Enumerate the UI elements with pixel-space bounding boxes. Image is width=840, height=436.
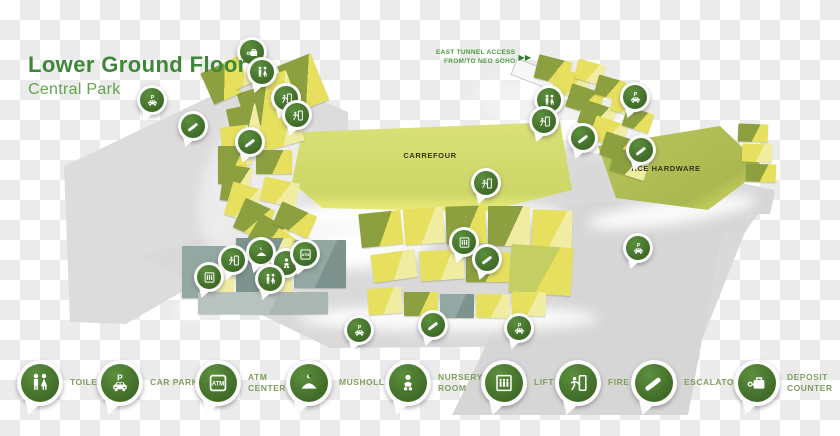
carpark-icon: P: [507, 316, 531, 340]
page-title: Lower Ground Floor: [28, 52, 247, 78]
legend-pin-escalator: [631, 360, 677, 406]
legend-pin-toilet: [17, 360, 63, 406]
legend-label: DEPOSIT COUNTER: [787, 360, 840, 406]
carrefour-area[interactable]: [292, 118, 572, 214]
map-pin-carpark[interactable]: P: [620, 82, 650, 112]
ace-hardware-label: ACE HARDWARE: [616, 164, 716, 173]
legend-pin-musholla: [286, 360, 332, 406]
legend-pin-deposit: [734, 360, 780, 406]
map-pin-atm[interactable]: ATM: [290, 239, 320, 269]
tunnel-arrows-icon: ▶ ▶: [518, 53, 530, 62]
escalator-icon: [181, 114, 205, 138]
shop-unit-block: [440, 294, 474, 318]
mall-map-canvas: Lower Ground Floor Central Park EAST TUN…: [0, 0, 840, 436]
shop-unit-block: [367, 287, 403, 315]
shop-unit-block: [403, 207, 445, 246]
map-pin-escalator[interactable]: [626, 135, 656, 165]
musholla-icon: [290, 364, 328, 402]
map-pin-escalator[interactable]: [418, 310, 448, 340]
svg-text:P: P: [636, 242, 640, 248]
carpark-icon: P: [347, 318, 371, 342]
shop-unit-block: [738, 123, 769, 142]
musholla-icon: [249, 240, 273, 264]
tunnel-note-line2: FROM/TO NEO SOHO: [436, 58, 515, 67]
svg-text:P: P: [117, 372, 123, 382]
atm-icon: ATM: [199, 364, 237, 402]
shop-unit-block: [358, 210, 403, 248]
atm-icon: ATM: [293, 242, 317, 266]
shop-unit-block: [488, 206, 530, 246]
deposit-icon: [738, 364, 776, 402]
nursery-icon: [389, 364, 427, 402]
map-pin-fireexit[interactable]: [471, 168, 501, 198]
lift-icon: [452, 230, 476, 254]
map-pin-toilet[interactable]: [255, 264, 285, 294]
escalator-icon: [629, 138, 653, 162]
carrefour-label: CARREFOUR: [378, 151, 482, 160]
map-pin-lift[interactable]: [194, 262, 224, 292]
tunnel-note-line1: EAST TUNNEL ACCESS: [436, 49, 515, 58]
legend-pin-carpark: P: [97, 360, 143, 406]
legend-pin-lift: [481, 360, 527, 406]
fireexit-icon: [532, 109, 556, 133]
map-pin-toilet[interactable]: [247, 57, 277, 87]
map-pin-escalator[interactable]: [235, 127, 265, 157]
map-pin-fireexit[interactable]: [282, 100, 312, 130]
fireexit-icon: [285, 103, 309, 127]
map-pin-fireexit[interactable]: [529, 106, 559, 136]
fireexit-icon: [221, 248, 245, 272]
shop-unit-block: [742, 143, 773, 162]
svg-text:P: P: [633, 91, 637, 97]
legend-pin-nursery: [385, 360, 431, 406]
svg-text:ATM: ATM: [212, 382, 225, 388]
lift-icon: [197, 265, 221, 289]
carpark-icon: P: [623, 85, 647, 109]
tunnel-access-note: EAST TUNNEL ACCESS FROM/TO NEO SOHO ▶ ▶: [436, 49, 530, 67]
map-pin-escalator[interactable]: [568, 123, 598, 153]
shop-unit-block: [746, 163, 777, 182]
shop-unit-block: [476, 293, 511, 318]
map-pin-carpark[interactable]: P: [344, 315, 374, 345]
map-pin-carpark[interactable]: P: [623, 233, 653, 263]
carpark-icon: P: [626, 236, 650, 260]
toilet-icon: [250, 60, 274, 84]
escalator-icon: [635, 364, 673, 402]
page-subtitle: Central Park: [28, 81, 247, 99]
svg-text:P: P: [517, 322, 521, 328]
shop-unit-block: [256, 150, 292, 174]
map-pin-carpark[interactable]: P: [504, 313, 534, 343]
escalator-icon: [238, 130, 262, 154]
fireexit-icon: [474, 171, 498, 195]
map-pin-escalator[interactable]: [178, 111, 208, 141]
legend-bar: TOILETPCAR PARKATMATM CENTERMUSHOLLANURS…: [0, 352, 840, 432]
map-pin-escalator[interactable]: [472, 244, 502, 274]
carpark-icon: P: [101, 364, 139, 402]
toilet-icon: [258, 267, 282, 291]
svg-text:P: P: [357, 324, 361, 330]
escalator-icon: [571, 126, 595, 150]
legend-pin-fireexit: [555, 360, 601, 406]
toilet-icon: [21, 364, 59, 402]
fireexit-icon: [559, 364, 597, 402]
escalator-icon: [421, 313, 445, 337]
lift-icon: [485, 364, 523, 402]
escalator-icon: [475, 247, 499, 271]
shop-unit-block: [508, 244, 573, 296]
legend-pin-atm: ATM: [195, 360, 241, 406]
svg-text:ATM: ATM: [301, 253, 309, 257]
